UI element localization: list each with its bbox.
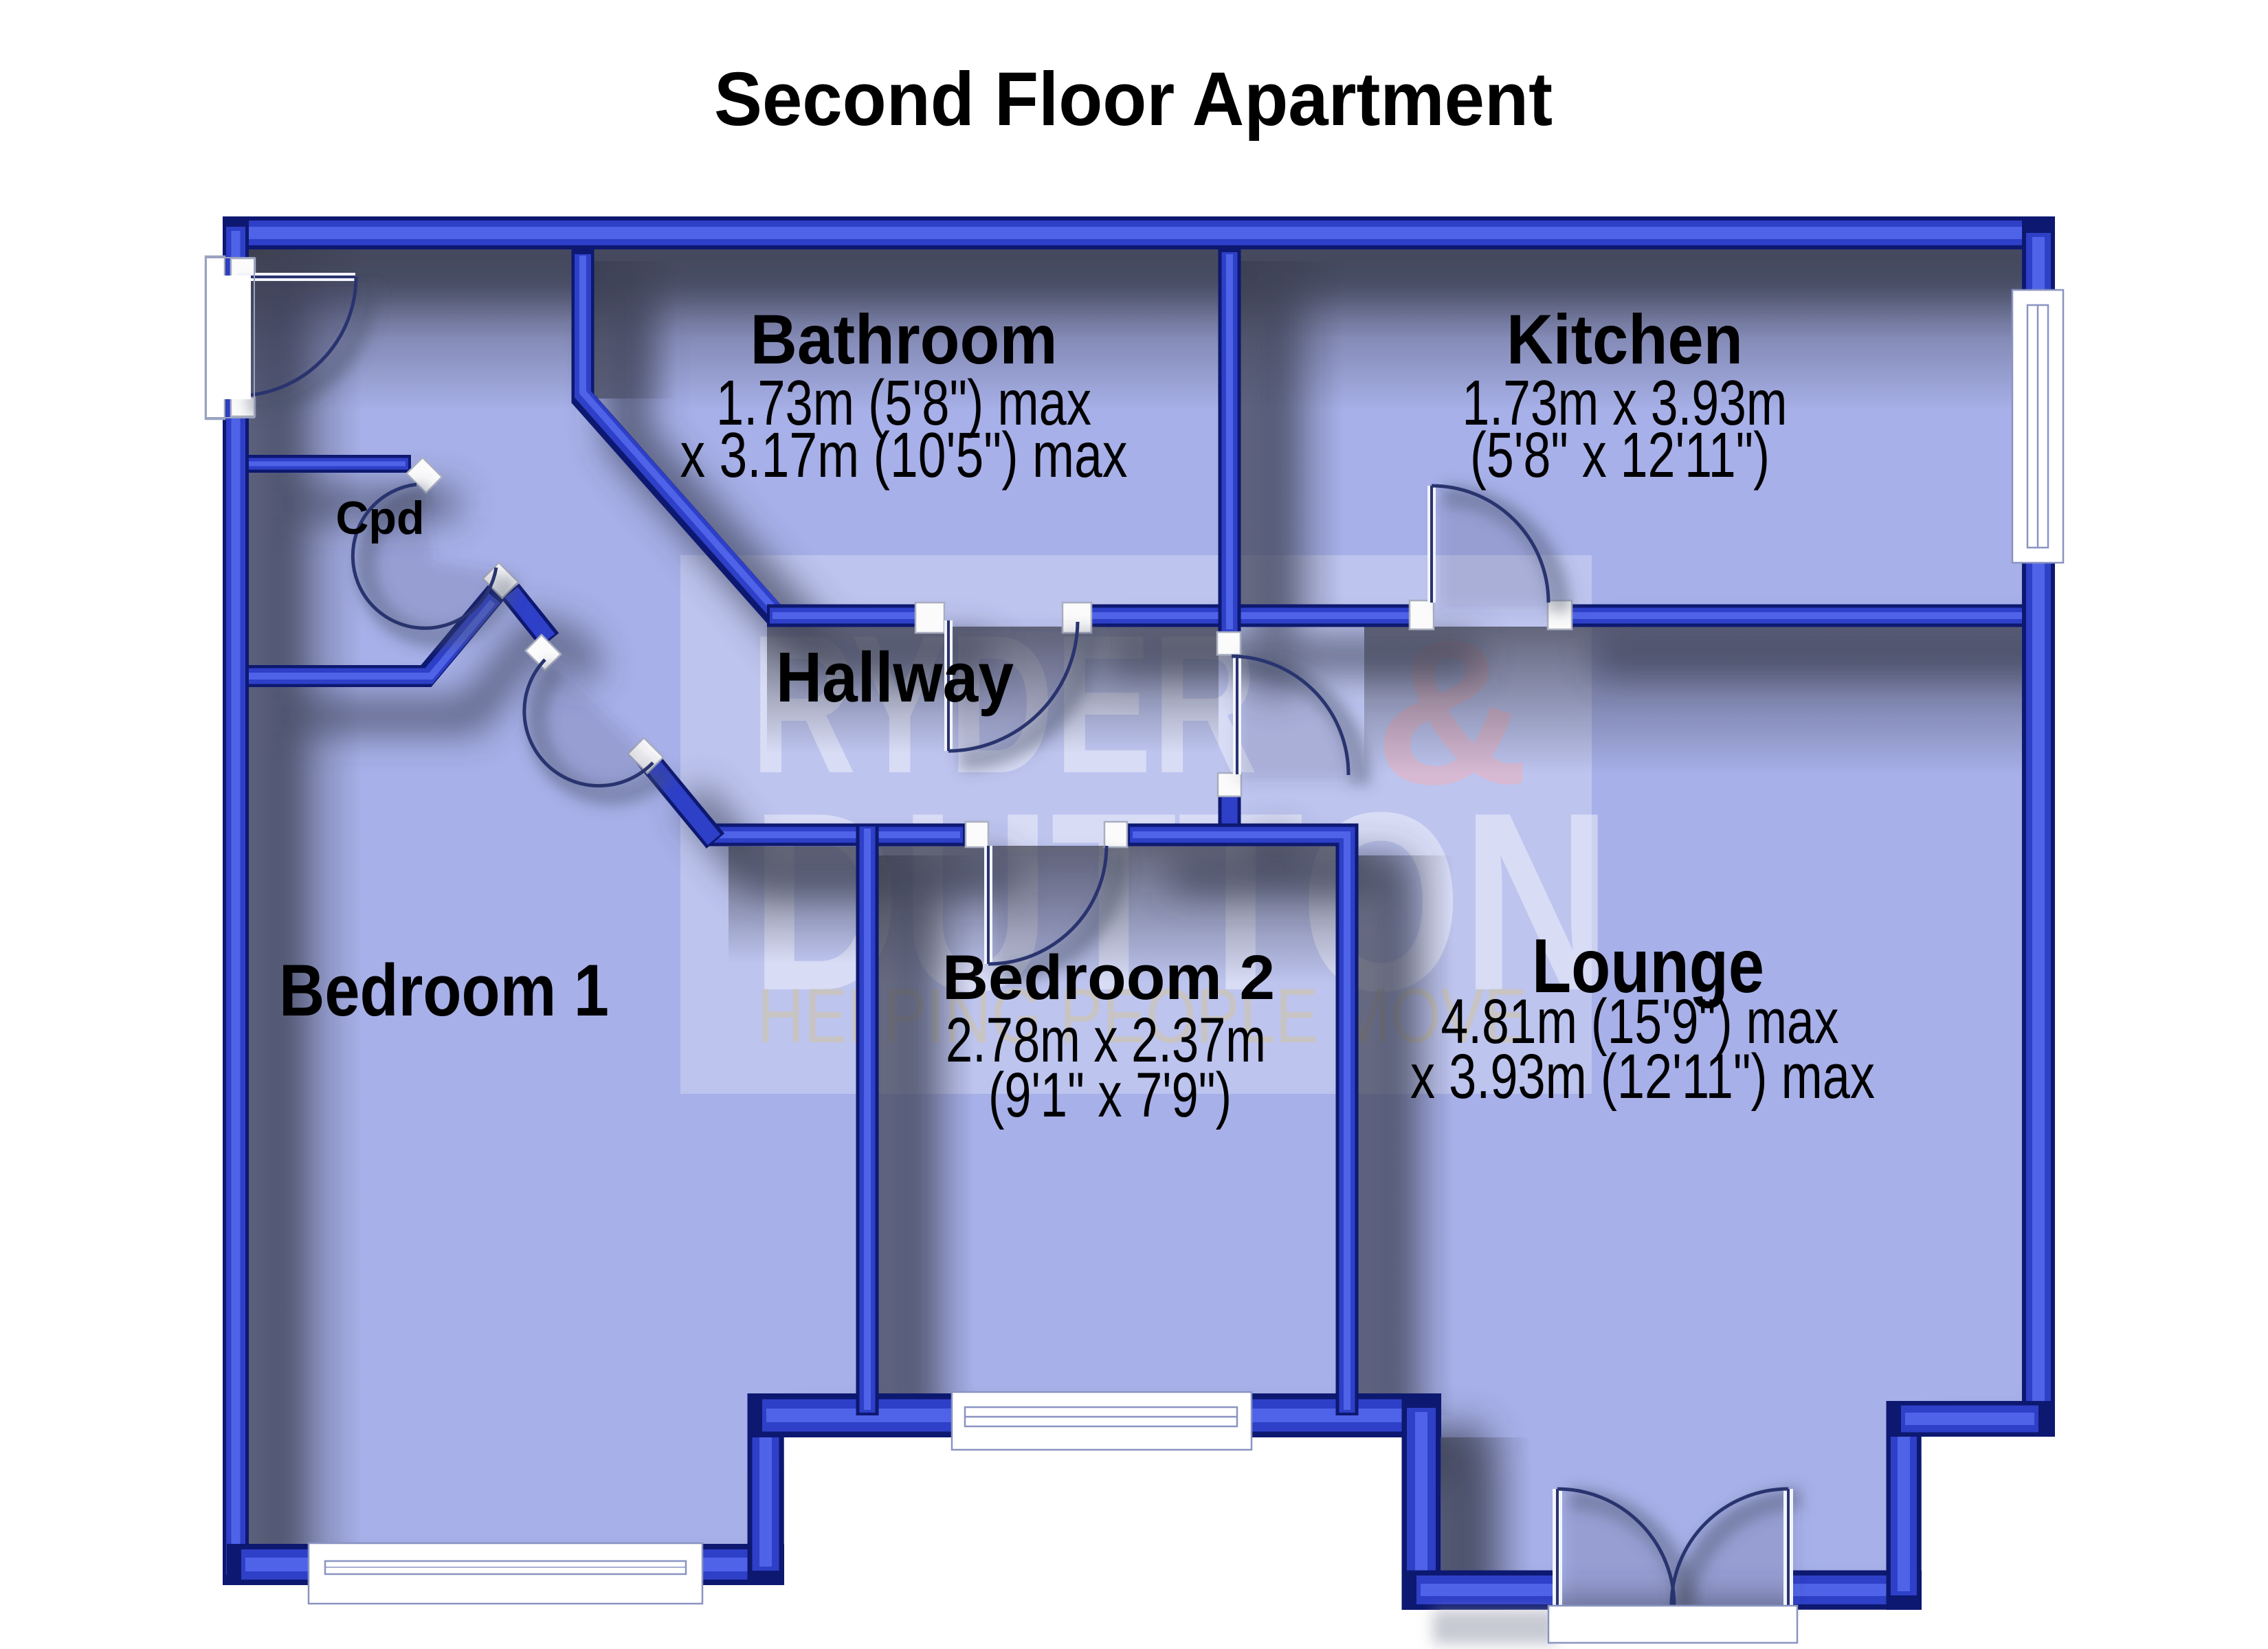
svg-text:Second Floor Apartment: Second Floor Apartment bbox=[714, 57, 1553, 142]
svg-text:Cpd: Cpd bbox=[336, 492, 425, 544]
svg-text:x 3.17m (10'5") max: x 3.17m (10'5") max bbox=[680, 419, 1128, 491]
svg-text:Bedroom 1: Bedroom 1 bbox=[279, 949, 609, 1031]
svg-text:(9'1" x 7'9"): (9'1" x 7'9") bbox=[988, 1060, 1232, 1130]
svg-text:x 3.93m (12'11") max: x 3.93m (12'11") max bbox=[1410, 1042, 1875, 1112]
svg-text:Hallway: Hallway bbox=[776, 638, 1014, 717]
svg-text:(5'8" x 12'11"): (5'8" x 12'11") bbox=[1470, 419, 1770, 491]
svg-text:Bedroom 2: Bedroom 2 bbox=[942, 943, 1275, 1013]
